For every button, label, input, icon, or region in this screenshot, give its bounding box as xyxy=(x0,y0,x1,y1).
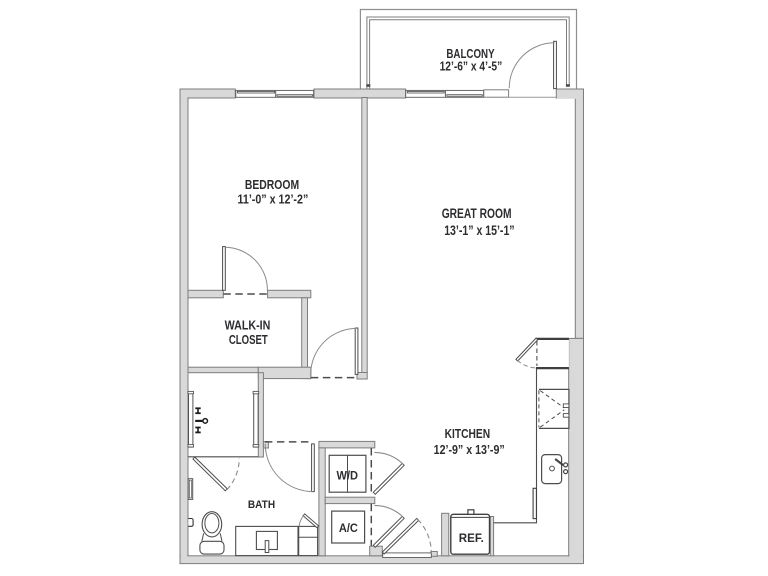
svg-text:BEDROOM: BEDROOM xyxy=(245,177,299,192)
svg-text:CLOSET: CLOSET xyxy=(229,332,268,347)
svg-text:W/D: W/D xyxy=(337,470,359,482)
svg-text:12’-6” x 4’-5”: 12’-6” x 4’-5” xyxy=(440,59,503,74)
svg-text:KITCHEN: KITCHEN xyxy=(445,427,491,441)
svg-text:13’-1” x 15’-1”: 13’-1” x 15’-1” xyxy=(444,223,514,238)
svg-text:GREAT ROOM: GREAT ROOM xyxy=(442,206,512,221)
svg-text:WALK-IN: WALK-IN xyxy=(225,317,271,332)
svg-text:REF.: REF. xyxy=(459,531,484,545)
svg-text:11’-0” x 12’-2”: 11’-0” x 12’-2” xyxy=(238,192,309,207)
svg-text:12’-9” x 13’-9”: 12’-9” x 13’-9” xyxy=(434,443,505,457)
svg-text:BATH: BATH xyxy=(248,499,275,511)
svg-text:A/C: A/C xyxy=(339,523,358,535)
